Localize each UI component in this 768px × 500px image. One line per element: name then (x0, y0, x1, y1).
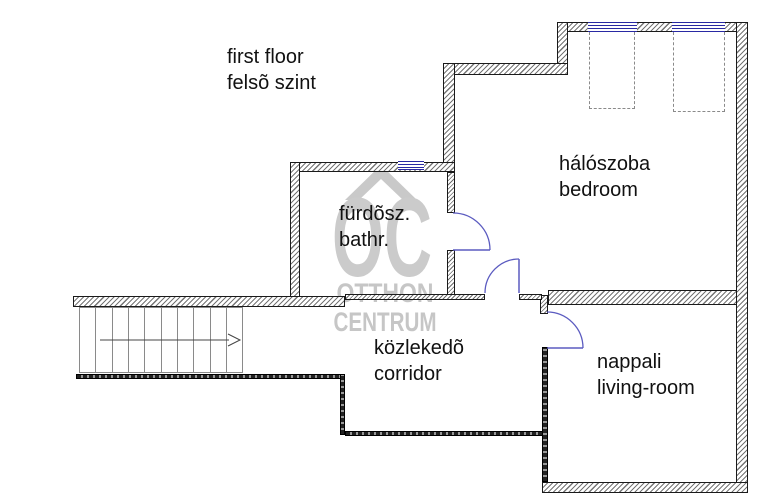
corridor-name-local: közlekedõ (374, 335, 464, 361)
title-en: first floor (227, 44, 316, 70)
living-room-name-en: living-room (597, 375, 695, 401)
room-label-corridor: közlekedõ corridor (374, 335, 464, 387)
floor-plan: OC OTTHON CENTRUM (0, 0, 768, 500)
title-local: felsõ szint (227, 70, 316, 96)
bathroom-name-local: fürdõsz. (339, 201, 410, 227)
door-arc-living-room (547, 312, 583, 348)
stairs-arrow-head-icon (228, 334, 240, 346)
room-label-bedroom: hálószoba bedroom (559, 151, 650, 203)
corridor-name-en: corridor (374, 361, 464, 387)
bathroom-name-en: bathr. (339, 227, 410, 253)
bedroom-name-local: hálószoba (559, 151, 650, 177)
room-label-bathroom: fürdõsz. bathr. (339, 201, 410, 253)
door-arc-bathroom (453, 213, 490, 250)
living-room-name-local: nappali (597, 349, 695, 375)
door-arc-bedroom (485, 259, 519, 293)
page-title: first floor felsõ szint (227, 44, 316, 96)
bedroom-name-en: bedroom (559, 177, 650, 203)
room-label-living-room: nappali living-room (597, 349, 695, 401)
